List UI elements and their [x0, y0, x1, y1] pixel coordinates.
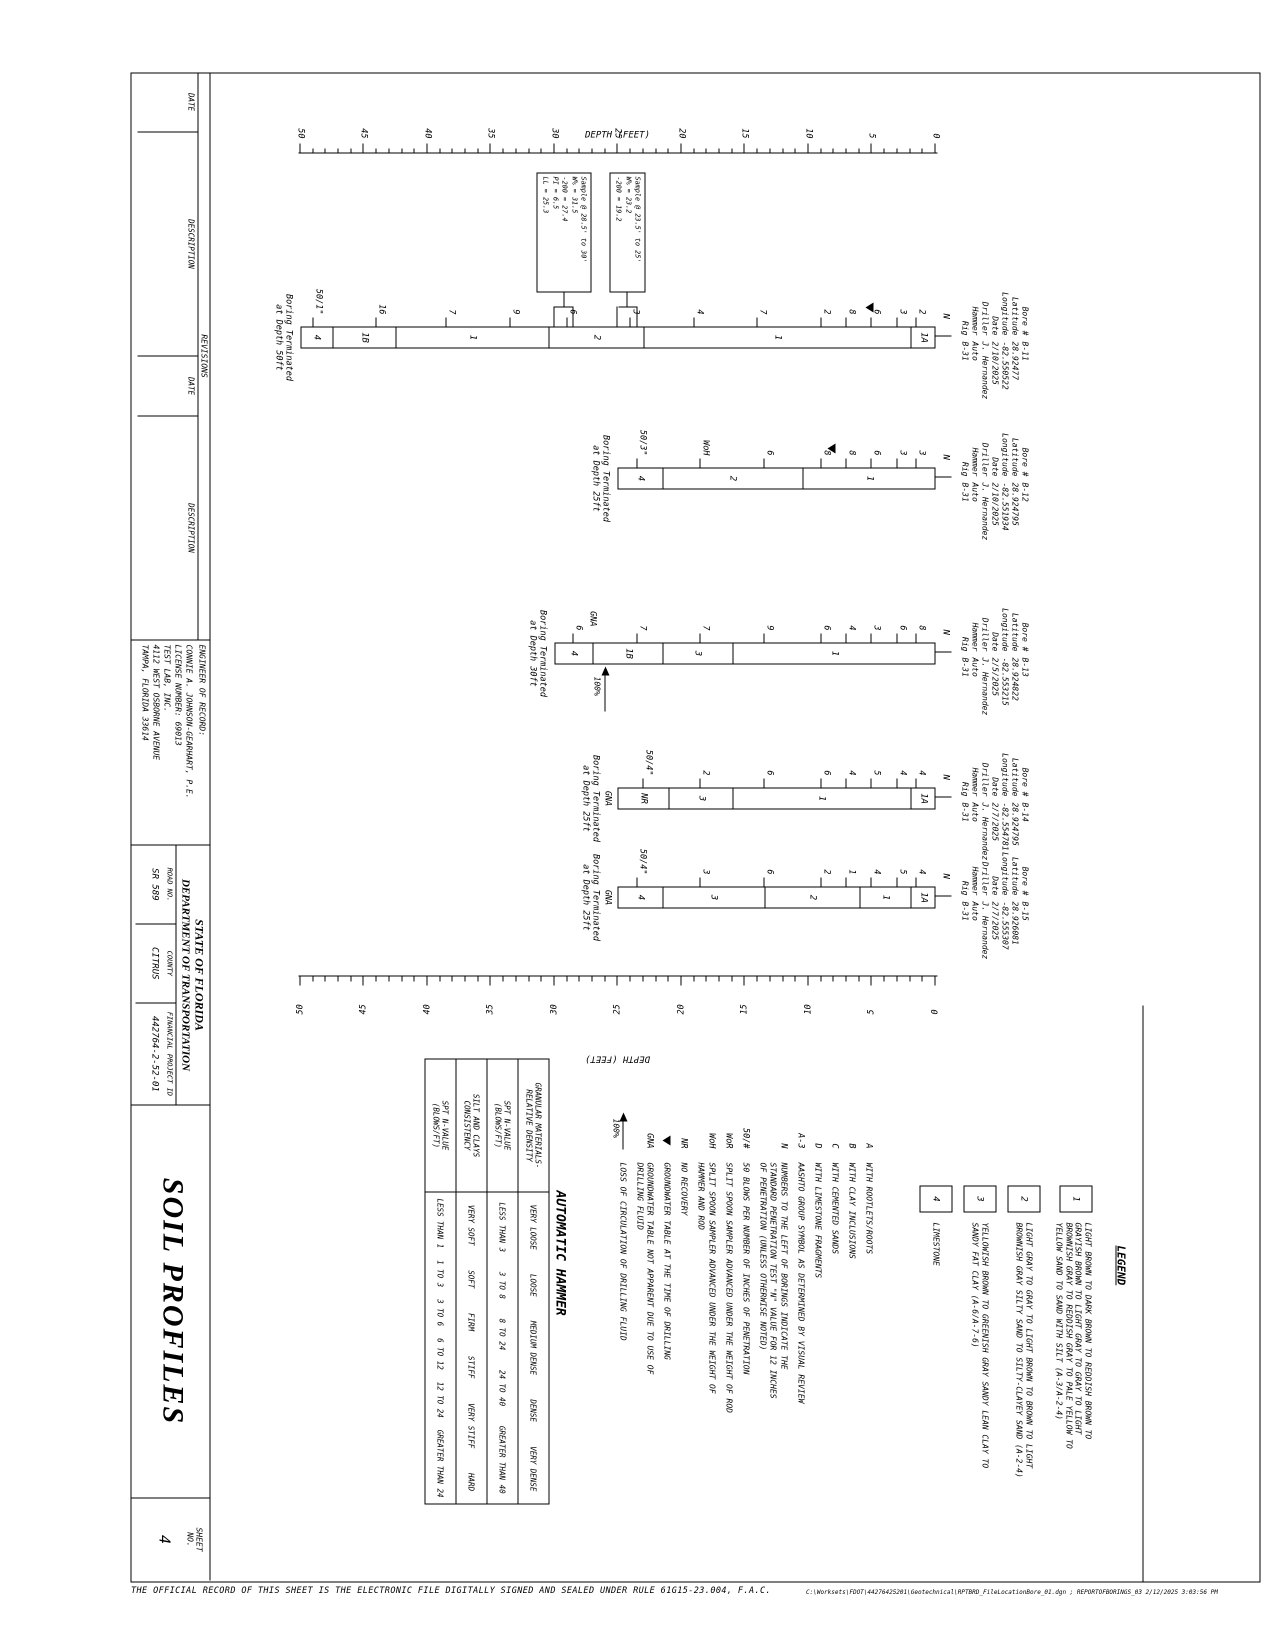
legend-title: LEGEND [1114, 1245, 1127, 1285]
depth-tick [540, 148, 541, 153]
note-text: GROUNDWATER TABLE NOT APPARENT DUE TO US… [634, 1162, 655, 1374]
depth-tick [807, 976, 808, 985]
depth-tick [858, 148, 859, 153]
hammer-table-row-label: SPT N-VALUE (BLOWS/FT) [487, 1059, 517, 1192]
depth-tick-label: 5 [867, 112, 877, 138]
sheet-no-label: SHEET NO. [185, 1498, 203, 1580]
loss-arrow-head [601, 666, 609, 675]
stratum-segment: 1A [910, 788, 935, 808]
note-text: WITH ROOTLETS/ROOTS [863, 1162, 874, 1254]
depth-tick-label: 15 [740, 988, 750, 1014]
hammer-table-value: VERY SOFT [467, 1204, 476, 1245]
n-value-label: 16 [376, 268, 386, 314]
financial-project-id-cell: FINANCIAL PROJECT ID 442764-2-52-01 [135, 1003, 175, 1104]
depth-axis-caption: DEPTH (FEET) [573, 1053, 663, 1063]
n-value-label: 6 [764, 409, 774, 455]
boring-column-B-11: 1A1211B4 [300, 326, 935, 348]
n-value-tick [871, 633, 872, 642]
boring-header-labels: Bore # Latitude Longitude Date Driller H… [959, 217, 1029, 335]
note-loss-label: 100% [611, 1118, 620, 1137]
boring-header-labels: Bore # Latitude Longitude Date Driller H… [959, 533, 1029, 651]
depth-tick [667, 976, 668, 981]
boring-column-B-15: 1A1234 [618, 886, 936, 908]
depth-tick [388, 976, 389, 981]
stratum-segment: 1 [395, 327, 547, 347]
depth-tick-label: 0 [930, 112, 940, 138]
depth-tick [642, 148, 643, 153]
note-symbol: A [863, 1100, 873, 1148]
depth-tick [375, 148, 376, 153]
depth-tick-label: 15 [740, 112, 750, 138]
stratum-segment: 4 [618, 887, 662, 907]
n-value-tick [629, 317, 630, 326]
depth-tick [426, 976, 427, 985]
note-text: NUMBERS TO THE LEFT OF BORINGS INDICATE … [757, 1162, 789, 1398]
depth-tick-label: 40 [422, 112, 432, 138]
n-value-tick [699, 458, 700, 467]
n-value-label: 6 [764, 828, 774, 874]
depth-tick [756, 148, 757, 153]
depth-tick [337, 976, 338, 981]
depth-tick [909, 148, 910, 153]
gna-label: GNA [603, 778, 613, 818]
hammer-table-value: SOFT [467, 1270, 476, 1288]
sheet-no-value: 4 [155, 1498, 173, 1580]
depth-tick [832, 976, 833, 981]
n-value-label: 7 [700, 584, 710, 630]
n-value-label: 4 [846, 584, 856, 630]
depth-tick [629, 148, 630, 153]
n-value-tick [820, 877, 821, 886]
depth-tick [426, 143, 427, 152]
depth-tick [401, 148, 402, 153]
depth-tick [731, 148, 732, 153]
depth-tick [350, 148, 351, 153]
hammer-table-row: GRANULAR MATERIALS- RELATIVE DENSITYVERY… [518, 1059, 548, 1503]
sample-bracket-lead [563, 292, 564, 306]
depth-tick [528, 976, 529, 981]
n-value-tick [896, 633, 897, 642]
note-text: NO RECOVERY [678, 1162, 689, 1215]
note-symbol: GNA [645, 1100, 655, 1148]
note-text: GROUNDWATER TABLE AT THE TIME OF DRILLIN… [661, 1162, 672, 1359]
stratum-segment: 2 [662, 468, 802, 488]
stratum-segment: 1B [332, 327, 396, 347]
revisions-col-description-1: DESCRIPTION [137, 132, 197, 356]
n-value-tick [845, 458, 846, 467]
depth-tick [617, 143, 618, 152]
note-text: WITH CLAY INCLUSIONS [846, 1162, 857, 1258]
hammer-table-value: VERY LOOSE [529, 1204, 538, 1249]
depth-tick [312, 976, 313, 981]
n-value-tick [915, 458, 916, 467]
note-symbol: A-3 [795, 1100, 805, 1148]
note-text: LOSS OF CIRCULATION OF DRILLING FLUID [617, 1162, 628, 1340]
depth-axis-caption: DEPTH (FEET) [573, 130, 663, 140]
depth-tick-label: 10 [803, 988, 813, 1014]
n-value-tick [763, 633, 764, 642]
boring-column-B-14: 1A13NR [618, 787, 936, 809]
sample-bracket-stub [617, 306, 618, 326]
n-value-tick [375, 317, 376, 326]
depth-tick [832, 148, 833, 153]
sample-bracket-stub [572, 306, 573, 326]
depth-tick-label: 25 [613, 988, 623, 1014]
boring-header-values: B-15 28.926081 -82.555307 2/7/2025 J. He… [959, 901, 1029, 1011]
n-value-label: 7 [637, 584, 647, 630]
depth-tick-label: 20 [676, 988, 686, 1014]
depth-tick [794, 976, 795, 981]
sheet-no-block: SHEET NO. 4 [131, 1498, 209, 1580]
depth-tick [629, 976, 630, 981]
stratum-segment: NR [618, 788, 669, 808]
n-value-label: WoH [700, 409, 710, 455]
depth-tick [820, 148, 821, 153]
n-value-tick [756, 317, 757, 326]
depth-tick [782, 148, 783, 153]
depth-tick [553, 976, 554, 985]
termination-note: Boring Terminated at Depth 25ft [591, 408, 611, 548]
n-value-label: 3 [916, 409, 926, 455]
depth-tick-label: 35 [486, 112, 496, 138]
note-text: AASHTO GROUP SYMBOL AS DETERMINED BY VIS… [795, 1162, 806, 1403]
engineer-of-record-text: CONNIE A. JOHNSON-GEARHART, P.E. LICENSE… [139, 644, 194, 840]
depth-tick [578, 976, 579, 981]
depth-tick-label: 30 [549, 112, 559, 138]
n-value-label: 4 [916, 729, 926, 775]
hammer-table-value: 6 TO 12 [436, 1338, 445, 1370]
boring-header-labels: Bore # Latitude Longitude Date Driller H… [959, 777, 1029, 895]
digital-signature-disclaimer: THE OFFICIAL RECORD OF THIS SHEET IS THE… [131, 1586, 771, 1596]
title-block: REVISIONS DATE DESCRIPTION DATE DESCRIPT… [131, 72, 210, 1580]
n-value-tick [871, 778, 872, 787]
depth-tick [617, 976, 618, 985]
n-value-label: 6 [821, 729, 831, 775]
depth-tick [667, 148, 668, 153]
n-column-label: N [940, 774, 950, 779]
n-value-label: 3 [897, 268, 907, 314]
note-symbol: WoH [706, 1100, 716, 1148]
depth-tick [439, 976, 440, 981]
hammer-table-value: FIRM [467, 1313, 476, 1331]
depth-tick [642, 976, 643, 981]
n-value-tick [915, 633, 916, 642]
n-value-label: 2 [700, 729, 710, 775]
n-value-tick [896, 458, 897, 467]
n-value-label: 7 [446, 268, 456, 314]
depth-tick [718, 976, 719, 981]
hammer-table-row-label: GRANULAR MATERIALS- RELATIVE DENSITY [518, 1059, 548, 1192]
ground-line [935, 796, 951, 797]
n-value-label: 1 [846, 828, 856, 874]
n-value-tick [763, 877, 764, 886]
n-value-tick [699, 633, 700, 642]
depth-tick [744, 976, 745, 985]
legend-item-text: LIGHT GRAY TO GRAY TO LIGHT BROWN TO BRO… [1014, 1222, 1033, 1477]
legend-item-text: YELLOWISH BROWN TO GREENISH GRAY SANDY L… [970, 1222, 989, 1468]
note-text: SPLIT SPOON SAMPLER ADVANCED UNDER THE W… [723, 1162, 734, 1412]
n-value-label: 6 [573, 584, 583, 630]
n-value-label: 6 [872, 409, 882, 455]
n-value-label: 6 [897, 584, 907, 630]
legend-symbol-box: 4 [919, 1185, 952, 1212]
financial-project-id-value: 442764-2-52-01 [149, 1003, 159, 1104]
n-value-label: 7 [757, 268, 767, 314]
depth-tick [858, 976, 859, 981]
n-value-tick [845, 633, 846, 642]
depth-tick-label: 0 [930, 988, 940, 1014]
n-value-label: 8 [846, 409, 856, 455]
soil-profiles-sheet: 05101520253035404550DEPTH (FEET)05101520… [0, 0, 1275, 1650]
depth-tick [312, 148, 313, 153]
depth-tick [896, 148, 897, 153]
depth-tick [337, 148, 338, 153]
depth-tick [299, 976, 300, 985]
gna-label: GNA [603, 877, 613, 917]
depth-tick [731, 976, 732, 981]
stratum-segment: 1A [910, 887, 935, 907]
agency-state: STATE OF FLORIDA [191, 845, 206, 1104]
depth-tick [883, 976, 884, 981]
note-loss-arrow-shaft [622, 1121, 623, 1149]
stratum-segment: 1B [592, 643, 662, 663]
n-value-tick [915, 317, 916, 326]
depth-tick [388, 148, 389, 153]
n-value-tick [820, 458, 821, 467]
depth-tick [680, 143, 681, 152]
sample-bracket-stub [553, 306, 554, 326]
hammer-table-row: SPT N-VALUE (BLOWS/FT)LESS THAN 11 TO 33… [425, 1059, 456, 1503]
hammer-table-value: HARD [467, 1473, 476, 1491]
ground-line [935, 651, 951, 652]
sheet-title: SOIL PROFILES [135, 1105, 209, 1497]
n-value-label: 2 [821, 268, 831, 314]
stratum-segment: 1A [910, 327, 935, 347]
depth-tick [744, 143, 745, 152]
depth-tick [464, 148, 465, 153]
depth-tick [515, 148, 516, 153]
n-value-tick [896, 877, 897, 886]
depth-tick [896, 976, 897, 981]
stratum-segment: 4 [554, 643, 592, 663]
hammer-table-value: GREATER THAN 24 [436, 1429, 445, 1497]
depth-tick [680, 976, 681, 985]
stratum-segment: 2 [548, 327, 643, 347]
hammer-table: GRANULAR MATERIALS- RELATIVE DENSITYVERY… [424, 1058, 549, 1504]
n-value-tick [572, 633, 573, 642]
sheet-title-block: SOIL PROFILES [131, 1105, 209, 1498]
loss-arrow-shaft [604, 675, 605, 711]
depth-tick [921, 976, 922, 981]
n-value-tick [845, 877, 846, 886]
n-value-tick [509, 317, 510, 326]
depth-tick [451, 976, 452, 981]
n-value-label: 50/3" [637, 409, 647, 455]
stratum-segment: 1 [802, 468, 935, 488]
ground-line [935, 895, 951, 896]
hammer-table-value: 1 TO 3 [436, 1260, 445, 1287]
hammer-table-value: VERY STIFF [467, 1403, 476, 1448]
depth-tick [413, 976, 414, 981]
n-value-label: 9 [510, 268, 520, 314]
depth-tick [413, 148, 414, 153]
n-value-tick [445, 317, 446, 326]
depth-tick [502, 976, 503, 981]
depth-tick-label: 50 [295, 988, 305, 1014]
depth-tick-label: 5 [867, 988, 877, 1014]
revisions-col-date-1: DATE [137, 72, 197, 132]
depth-tick-label: 45 [359, 112, 369, 138]
gna-label: GNA [587, 570, 597, 626]
n-value-label: 6 [821, 584, 831, 630]
county-value: CITRUS [149, 924, 159, 1002]
n-value-label: 3 [700, 828, 710, 874]
hammer-table-value: 3 TO 6 [436, 1299, 445, 1326]
note-text: SPLIT SPOON SAMPLER ADVANCED UNDER THE W… [695, 1162, 716, 1393]
n-value-label: 4 [846, 729, 856, 775]
road-no-cell: ROAD NO. SR 589 [135, 845, 175, 924]
n-value-tick [845, 778, 846, 787]
depth-tick [705, 976, 706, 981]
depth-tick [324, 148, 325, 153]
depth-tick-label: 20 [676, 112, 686, 138]
note-symbol: 50/# [740, 1100, 750, 1148]
n-value-tick [763, 458, 764, 467]
depth-tick [604, 148, 605, 153]
depth-tick-label: 45 [359, 988, 369, 1014]
n-value-label: 5 [872, 729, 882, 775]
legend-separator-line [1142, 1005, 1143, 1581]
n-column-label: N [940, 873, 950, 878]
hammer-table-row: SPT N-VALUE (BLOWS/FT)LESS THAN 33 TO 88… [487, 1059, 518, 1503]
legend-symbol-box: 1 [1059, 1185, 1092, 1212]
depth-tick [515, 976, 516, 981]
n-value-tick [871, 458, 872, 467]
depth-tick [934, 143, 935, 152]
legend-symbol-box: 3 [963, 1185, 996, 1212]
depth-tick [566, 148, 567, 153]
stratum-segment: 2 [764, 887, 859, 907]
groundwater-symbol [865, 302, 873, 312]
n-value-tick [820, 778, 821, 787]
n-value-tick [845, 317, 846, 326]
note-symbol: NR [679, 1100, 689, 1148]
n-value-tick [915, 877, 916, 886]
depth-tick [769, 976, 770, 981]
depth-tick [375, 976, 376, 981]
hammer-table-value: GREATER THAN 40 [498, 1425, 507, 1493]
hammer-table-value: LESS THAN 1 [436, 1198, 445, 1248]
sample-data-box: Sample @ 28.5' to 30' W% = 31.5 -200 = 2… [536, 172, 592, 292]
hammer-table-value: 12 TO 24 [436, 1381, 445, 1417]
hammer-table-value: VERY DENSE [529, 1446, 538, 1491]
stratum-segment: 3 [668, 788, 732, 808]
n-value-tick [871, 877, 872, 886]
n-column-label: N [940, 313, 950, 318]
depth-tick [502, 148, 503, 153]
depth-tick [591, 148, 592, 153]
depth-tick-label: 35 [486, 988, 496, 1014]
depth-tick [655, 976, 656, 981]
depth-tick [705, 148, 706, 153]
n-value-tick [636, 877, 637, 886]
n-value-tick [312, 317, 313, 326]
n-column-label: N [940, 454, 950, 459]
depth-tick-label: 50 [295, 112, 305, 138]
n-value-label: 9 [764, 584, 774, 630]
boring-header-labels: Bore # Latitude Longitude Date Driller H… [959, 358, 1029, 476]
agency-block: STATE OF FLORIDA DEPARTMENT OF TRANSPORT… [131, 845, 209, 1105]
depth-tick [578, 148, 579, 153]
stratum-segment: 1 [643, 327, 910, 347]
n-value-tick [699, 778, 700, 787]
note-groundwater-symbol [663, 1135, 671, 1145]
note-symbol: WoR [723, 1100, 733, 1148]
stratum-segment: 3 [662, 643, 732, 663]
legend-item-text: LIGHT BROWN TO DARK BROWN TO REDDISH BRO… [1054, 1222, 1092, 1448]
depth-tick [477, 976, 478, 981]
depth-tick [401, 976, 402, 981]
n-value-tick [636, 458, 637, 467]
hammer-table-value: STIFF [467, 1355, 476, 1378]
depth-tick [540, 976, 541, 981]
depth-tick [934, 976, 935, 985]
n-value-tick [699, 877, 700, 886]
hammer-table-values: LESS THAN 33 TO 88 TO 2424 TO 40GREATER … [498, 1192, 507, 1503]
n-value-label: 4 [872, 828, 882, 874]
n-value-tick [871, 317, 872, 326]
depth-tick [794, 148, 795, 153]
sample-data-text: Sample @ 28.5' to 30' W% = 31.5 -200 = 2… [540, 176, 588, 262]
depth-tick [921, 148, 922, 153]
depth-tick [845, 148, 846, 153]
sample-data-box: Sample @ 23.5' to 25' W% = 23.2 -200 = 1… [609, 172, 646, 292]
hammer-table-row-label: SPT N-VALUE (BLOWS/FT) [425, 1059, 455, 1192]
depth-tick [769, 148, 770, 153]
n-value-label: 4 [694, 268, 704, 314]
legend-item-text: LIMESTONE [931, 1222, 941, 1265]
depth-tick [871, 976, 872, 985]
n-value-label: 2 [916, 268, 926, 314]
note-symbol: D [812, 1100, 822, 1148]
boring-column-B-12: 124 [618, 467, 936, 489]
n-value-tick [896, 317, 897, 326]
depth-tick [566, 976, 567, 981]
n-value-tick [566, 317, 567, 326]
n-value-label: 5 [897, 828, 907, 874]
depth-tick-label: 30 [549, 988, 559, 1014]
road-no-value: SR 589 [149, 845, 159, 923]
drawing-sheet: 05101520253035404550DEPTH (FEET)05101520… [0, 0, 1275, 1650]
hammer-table-value: 8 TO 24 [498, 1318, 507, 1350]
depth-tick [439, 148, 440, 153]
n-value-label: 8 [916, 584, 926, 630]
n-value-label: 4 [897, 729, 907, 775]
depth-tick [909, 976, 910, 981]
depth-tick [490, 143, 491, 152]
hammer-table-row-label: SILT AND CLAYS CONSISTENCY [456, 1059, 486, 1192]
agency-department: DEPARTMENT OF TRANSPORTATION [179, 845, 191, 1104]
n-value-tick [896, 778, 897, 787]
n-value-label: 2 [821, 828, 831, 874]
note-text: WITH CEMENTED SANDS [829, 1162, 840, 1254]
county-label: COUNTY [165, 924, 173, 1002]
hammer-table-values: VERY LOOSELOOSEMEDIUM DENSEDENSEVERY DEN… [529, 1192, 538, 1503]
depth-tick [350, 976, 351, 981]
stratum-segment: 3 [662, 887, 764, 907]
n-value-tick [763, 778, 764, 787]
plot-file-stamp: C:\Worksets\FDOT\44276425201\Geotechnica… [806, 1589, 1218, 1596]
